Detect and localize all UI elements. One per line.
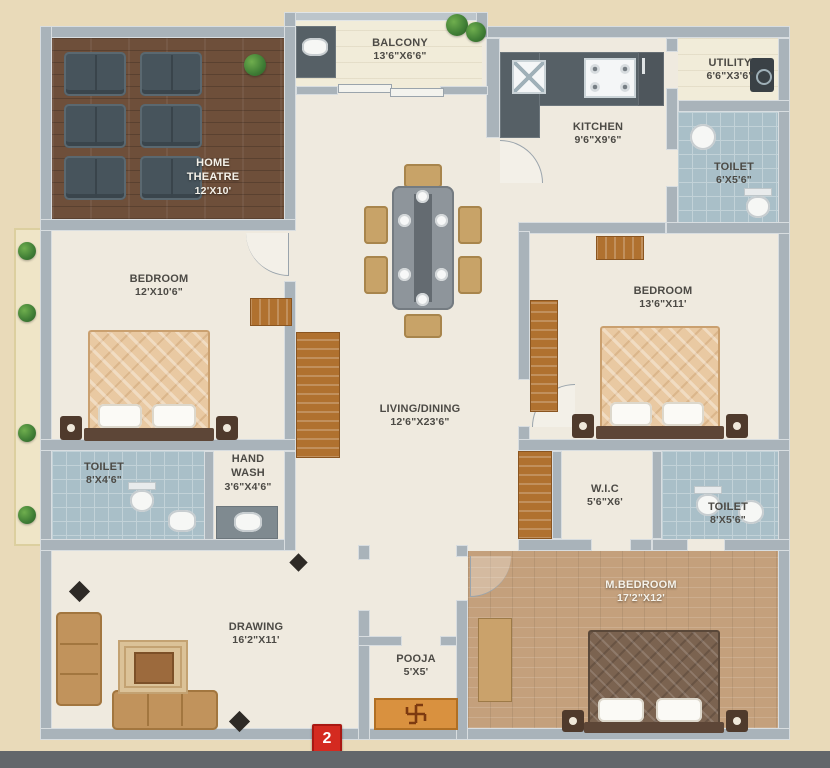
room-size: 12'6"X23'6" xyxy=(348,416,492,430)
room-size: 17'2"X12' xyxy=(566,592,716,606)
dining-chair xyxy=(458,206,482,244)
wall-home-theatre-right xyxy=(284,26,296,231)
wall-pooja-top-a xyxy=(358,636,402,646)
wall-wash-right xyxy=(284,451,296,551)
room-name: POOJA xyxy=(378,652,454,666)
burner-icon xyxy=(620,82,630,92)
theatre-seat xyxy=(64,156,126,200)
table-runner xyxy=(414,194,432,302)
room-label-toilet-bottom-left: TOILET 8'X4'6" xyxy=(62,460,146,488)
dining-table xyxy=(392,186,454,310)
room-label-kitchen: KITCHEN 9'6"X9'6" xyxy=(536,120,660,148)
room-size: 12'X10'6" xyxy=(104,286,214,300)
plant-icon xyxy=(446,14,468,36)
wall-left-outer xyxy=(40,26,52,740)
pillow xyxy=(152,404,196,428)
wall-home-theatre-bottom xyxy=(40,219,296,231)
dining-chair xyxy=(364,206,388,244)
room-size: 6'6"X3'6" xyxy=(686,70,774,84)
room-name: TOILET xyxy=(686,500,770,514)
wall-utility-left-b xyxy=(666,88,678,150)
plant-icon xyxy=(244,54,266,76)
plate xyxy=(435,214,448,227)
bottom-band xyxy=(0,751,830,768)
cabinet xyxy=(478,618,512,702)
plate xyxy=(435,268,448,281)
room-label-toilet-top-right: TOILET 6'X5'6" xyxy=(692,160,776,188)
dining-chair xyxy=(458,256,482,294)
room-size: 6'X5'6" xyxy=(692,174,776,188)
room-label-bedroom-right: BEDROOM 13'6"X11' xyxy=(608,284,718,312)
room-size: 5'6"X6' xyxy=(562,496,648,510)
wall-drawing-right-a xyxy=(358,545,370,560)
room-name: BALCONY xyxy=(340,36,460,50)
plant-icon xyxy=(18,304,36,322)
room-label-home-theatre: HOME THEATRE 12'X10' xyxy=(158,156,268,198)
plate xyxy=(398,214,411,227)
headboard xyxy=(596,426,724,439)
room-name: M.BEDROOM xyxy=(566,578,716,592)
room-size: 13'6"X6'6" xyxy=(340,50,460,64)
toilet-icon xyxy=(130,490,154,512)
dining-chair xyxy=(404,314,442,338)
room-size: 3'6"X4'6" xyxy=(218,481,278,495)
sofa xyxy=(56,612,102,706)
wall-utility-bottom xyxy=(678,100,790,112)
plant-icon xyxy=(18,506,36,524)
headboard xyxy=(584,722,724,733)
wall-toilets-bottom xyxy=(40,539,296,551)
headboard xyxy=(84,428,214,441)
room-name: HAND WASH xyxy=(218,452,278,481)
dining-chair xyxy=(404,164,442,188)
wall-balcony-bottom-a xyxy=(296,86,338,95)
marker-number: 2 xyxy=(323,730,332,748)
dining-chair xyxy=(364,256,388,294)
toilet-icon xyxy=(746,196,770,218)
wall-kitchen-left xyxy=(486,38,500,138)
pillow xyxy=(610,402,652,426)
wall-toilet-br-bottom-b xyxy=(724,539,790,551)
plant-icon xyxy=(466,22,486,42)
pillow xyxy=(662,402,704,426)
room-size: 9'6"X9'6" xyxy=(536,134,660,148)
pooja-mat xyxy=(374,698,458,730)
room-label-pooja: POOJA 5'X5' xyxy=(378,652,454,680)
side-table xyxy=(572,414,594,438)
burner-icon xyxy=(590,64,600,74)
plate xyxy=(398,268,411,281)
room-name: DRAWING xyxy=(194,620,318,634)
room-name: TOILET xyxy=(62,460,146,474)
wall-kitchen-bottom xyxy=(518,222,666,234)
room-label-utility: UTILITY 6'6"X3'6" xyxy=(686,56,774,84)
pillow xyxy=(656,698,702,722)
room-name: BEDROOM xyxy=(608,284,718,298)
sofa xyxy=(112,690,218,730)
theatre-seat xyxy=(64,104,126,148)
side-table xyxy=(60,416,82,440)
wall-top-right xyxy=(486,26,790,38)
wall-wic-left xyxy=(552,451,562,539)
room-size: 13'6"X11' xyxy=(608,298,718,312)
coffee-table xyxy=(134,652,174,684)
room-label-drawing: DRAWING 16'2"X11' xyxy=(194,620,318,648)
sliding-door-panel xyxy=(390,88,444,97)
sliding-door-panel xyxy=(338,84,392,93)
crockery-unit xyxy=(296,332,340,458)
wall-master-left-a xyxy=(456,545,468,557)
room-name: W.I.C xyxy=(562,482,648,496)
wall-drawing-right-b xyxy=(358,610,370,740)
swastika-icon xyxy=(404,702,428,726)
dresser xyxy=(596,236,644,260)
room-label-bedroom-left: BEDROOM 12'X10'6" xyxy=(104,272,214,300)
wall-balcony-bottom-b xyxy=(440,86,488,95)
room-label-wic: W.I.C 5'6"X6' xyxy=(562,482,648,510)
wall-toilet-br-bottom-a xyxy=(652,539,688,551)
room-name: UTILITY xyxy=(686,56,774,70)
room-name: BEDROOM xyxy=(104,272,214,286)
plant-icon xyxy=(18,242,36,260)
room-size: 8'X5'6" xyxy=(686,514,770,528)
wall-right-outer xyxy=(778,38,790,740)
wall-bedroom-right-left-a xyxy=(518,231,530,380)
wardrobe xyxy=(530,300,558,412)
room-name: HOME THEATRE xyxy=(173,156,253,185)
wall-toilet-tr-bottom xyxy=(666,222,790,234)
room-name: KITCHEN xyxy=(536,120,660,134)
side-table xyxy=(726,710,748,732)
burner-icon xyxy=(590,82,600,92)
washbasin-icon xyxy=(234,512,262,532)
theatre-seat xyxy=(140,52,202,96)
room-name: TOILET xyxy=(692,160,776,174)
room-size: 8'X4'6" xyxy=(62,474,146,488)
room-size: 5'X5' xyxy=(378,666,454,680)
floor-plan: BALCONY 13'6"X6'6" HOME THEATRE 12'X10' … xyxy=(0,0,830,768)
stove-icon xyxy=(584,58,636,98)
wardrobe xyxy=(518,451,552,539)
toilet-tank-icon xyxy=(744,188,772,196)
room-size: 16'2"X11' xyxy=(194,634,318,648)
side-table xyxy=(562,710,584,732)
room-label-hand-wash: HAND WASH 3'6"X4'6" xyxy=(218,452,278,494)
toilet-tank-icon xyxy=(694,486,722,494)
wall-wic-toilet-divider xyxy=(652,451,662,539)
wall-wic-bottom-a xyxy=(518,539,592,551)
marker-badge-2[interactable]: 2 xyxy=(312,724,342,754)
room-label-m-bedroom: M.BEDROOM 17'2"X12' xyxy=(566,578,716,606)
wall-top-left xyxy=(40,26,292,38)
wall-wic-bottom-b xyxy=(630,539,652,551)
washbasin-icon xyxy=(168,510,196,532)
dresser xyxy=(250,298,292,326)
plate xyxy=(416,190,429,203)
side-table xyxy=(726,414,748,438)
room-label-toilet-bottom-right: TOILET 8'X5'6" xyxy=(686,500,770,528)
wall-toilet-wash-divider xyxy=(204,451,214,543)
plate xyxy=(416,293,429,306)
room-label-living-dining: LIVING/DINING 12'6"X23'6" xyxy=(348,402,492,430)
sink-icon xyxy=(512,60,546,94)
wall-utility-left-a xyxy=(666,38,678,52)
washbasin-icon xyxy=(690,124,716,150)
fridge-icon xyxy=(638,52,664,106)
room-size: 12'X10' xyxy=(158,185,268,199)
side-table xyxy=(216,416,238,440)
room-name: LIVING/DINING xyxy=(348,402,492,416)
plant-icon xyxy=(18,424,36,442)
pillow xyxy=(98,404,142,428)
pillow xyxy=(598,698,644,722)
room-label-balcony: BALCONY 13'6"X6'6" xyxy=(340,36,460,64)
wall-bedroom-right-bottom xyxy=(518,439,790,451)
theatre-seat xyxy=(64,52,126,96)
theatre-seat xyxy=(140,104,202,148)
washbasin-icon xyxy=(302,38,328,56)
burner-icon xyxy=(620,64,630,74)
